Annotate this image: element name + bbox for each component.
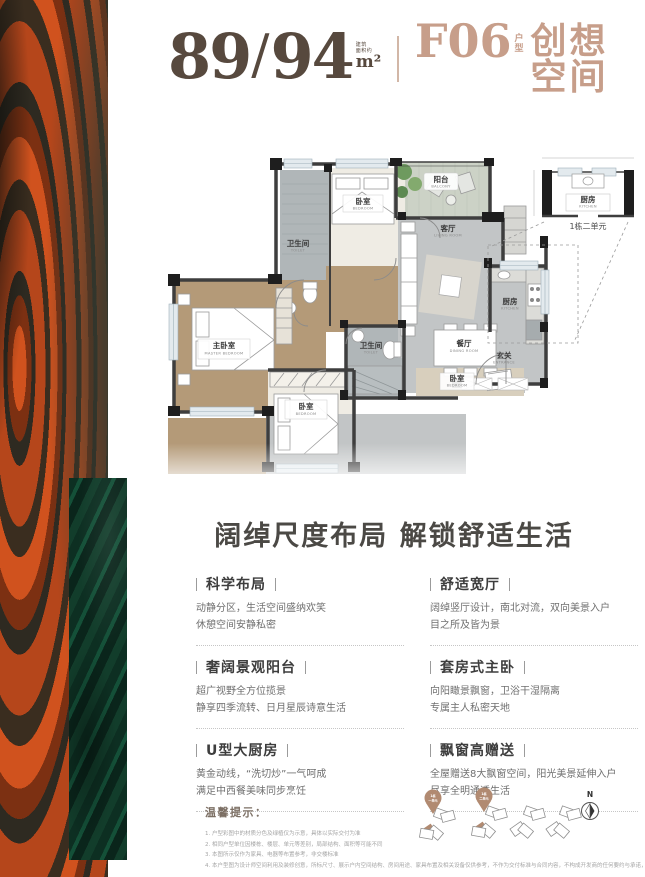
building-cluster-2 [471, 806, 507, 838]
plan-code-group: F06 户 型 创想空间 [415, 18, 634, 95]
feature-line: 黄金动线，“洗切炒”一气呵成 [196, 766, 404, 783]
feature-title: 舒适宽厅 [440, 574, 500, 594]
feature-header: 奢阔景观阳台 [196, 657, 404, 677]
tick-bar [430, 578, 431, 591]
feature-title: 套房式主卧 [440, 657, 515, 677]
tick-bar [196, 661, 197, 674]
section-headline: 阔绰尺度布局 解锁舒适生活 [158, 514, 630, 553]
feature-header: 舒适宽厅 [430, 574, 638, 594]
feature-header: 套房式主卧 [430, 657, 638, 677]
feature-line: 动静分区，生活空间盛纳欢笑 [196, 600, 404, 617]
feature-line: 专属主人私密天地 [430, 700, 638, 717]
room-sublabel-entrance: ENTRANCE [493, 361, 515, 365]
tick-bar [305, 661, 306, 674]
building-cluster-1 [419, 808, 455, 840]
site-key: 1栋 一单元 1栋 二单元 N [406, 784, 642, 870]
inset-plan: 厨房 KITCHEN 1栋二单元 [534, 158, 634, 231]
area-separator: / [251, 28, 269, 82]
feature-line: 休憩空间安静私密 [196, 617, 404, 634]
feature-title: 奢阔景观阳台 [206, 657, 296, 677]
room-sublabel-bedroom-mid: BEDROOM [296, 412, 317, 416]
room-sublabel-toilet-mid: TOILET [363, 351, 379, 355]
area-alt: 94 [270, 26, 352, 88]
feature-line: 满足中西餐美味同步烹饪 [196, 783, 404, 800]
feature-line: 向阳瞰景飘窗，卫浴干湿隔离 [430, 683, 638, 700]
feature-line: 静享四季流转、日月星辰诗意生活 [196, 700, 404, 717]
plan-code-suffix: 户 型 [514, 34, 523, 54]
feature-line: 全屋赠送8大飘窗空间，阳光美景延伸入户 [430, 766, 638, 783]
room-sublabel-balcony: BALCONY [431, 185, 451, 189]
header: 89 / 94 建筑 面积约 m² F06 户 型 创想空间 [168, 18, 634, 95]
room-sublabel-toilet-top: TOILET [290, 249, 306, 253]
inset-kitchen-label: 厨房 [581, 194, 596, 204]
pin-text-line1: 1栋 [430, 793, 436, 798]
pin-text-line2: 一单元 [428, 798, 438, 803]
room-sublabel-living: LIVING ROOM [434, 234, 462, 238]
building-cluster-3 [510, 806, 545, 838]
room-label-bedroom-top: 卧室 [356, 196, 371, 206]
compass-n-label: N [587, 790, 593, 799]
room-sublabel-bedroom-right: BEDROOM [447, 384, 468, 388]
room-sublabel-kitchen: KITCHEN [501, 307, 519, 311]
pin-text-line2: 二单元 [479, 796, 489, 801]
feature-balcony-view: 奢阔景观阳台 超广视野全方位揽景 静享四季流转、日月星辰诗意生活 [196, 657, 404, 729]
tick-bar [287, 744, 288, 757]
plan-code-suffix-2: 型 [514, 44, 523, 54]
area-unit-block: 建筑 面积约 m² [356, 42, 381, 71]
feature-science-layout: 科学布局 动静分区，生活空间盛纳欢笑 休憩空间安静私密 [196, 574, 404, 646]
feature-title: U型大厨房 [206, 740, 278, 760]
area-main: 89 [168, 26, 250, 88]
plan-name: 创想空间 [531, 23, 635, 95]
tick-bar [196, 744, 197, 757]
room-label-kitchen: 厨房 [503, 296, 518, 306]
inset-kitchen-sublabel: KITCHEN [579, 205, 597, 209]
area-unit: m² [356, 54, 381, 71]
inset-caption: 1栋二单元 [569, 221, 606, 231]
room-sublabel-bedroom-top: BEDROOM [353, 207, 374, 211]
building-cluster-4 [546, 806, 581, 838]
tick-bar [509, 578, 510, 591]
room-label-bedroom-right: 卧室 [450, 373, 465, 383]
green-marble-strip [69, 478, 127, 860]
feature-header: U型大厨房 [196, 740, 404, 760]
plan-code-suffix-1: 户 [514, 34, 523, 44]
feature-grid: 科学布局 动静分区，生活空间盛纳欢笑 休憩空间安静私密 舒适宽厅 阔绰竖厅设计，… [196, 574, 638, 812]
poster-page: 89 / 94 建筑 面积约 m² F06 户 型 创想空间 [0, 0, 645, 877]
feature-title: 飘窗高赠送 [440, 740, 515, 760]
tick-bar [524, 744, 525, 757]
pin-text-line1: 1栋 [481, 791, 487, 796]
tick-bar [196, 578, 197, 591]
feature-line: 目之所及皆为景 [430, 617, 638, 634]
room-label-bedroom-mid: 卧室 [299, 401, 314, 411]
feature-u-kitchen: U型大厨房 黄金动线，“洗切炒”一气呵成 满足中西餐美味同步烹饪 [196, 740, 404, 812]
room-label-master: 主卧室 [213, 340, 236, 350]
room-label-toilet-top: 卫生间 [287, 238, 310, 248]
tick-bar [524, 661, 525, 674]
header-divider [397, 36, 399, 82]
tick-bar [430, 744, 431, 757]
room-sublabel-dining: DINING ROOM [450, 349, 479, 353]
area-figures: 89 / 94 建筑 面积约 m² [168, 26, 381, 88]
tick-bar [430, 661, 431, 674]
compass-icon: N [582, 790, 599, 820]
feature-line: 阔绰竖厅设计，南北对流，双向美景入户 [430, 600, 638, 617]
room-label-living: 客厅 [440, 223, 456, 233]
feature-title: 科学布局 [206, 574, 266, 594]
tick-bar [275, 578, 276, 591]
feature-line: 超广视野全方位揽景 [196, 683, 404, 700]
room-sublabel-master: MASTER BEDROOM [205, 352, 244, 356]
room-label-balcony: 阳台 [434, 174, 449, 184]
feature-header: 飘窗高赠送 [430, 740, 638, 760]
plan-bottom-fade [158, 418, 645, 490]
room-label-dining: 餐厅 [456, 338, 472, 348]
plan-code: F06 [415, 18, 512, 64]
floor-plan: 厨房 KITCHEN 1栋二单元 阳台 BALCONY 卧室 BEDROOM 卫… [158, 118, 645, 490]
feature-header: 科学布局 [196, 574, 404, 594]
feature-comfort-hall: 舒适宽厅 阔绰竖厅设计，南北对流，双向美景入户 目之所及皆为景 [430, 574, 638, 646]
room-label-toilet-mid: 卫生间 [360, 340, 383, 350]
feature-suite-master: 套房式主卧 向阳瞰景飘窗，卫浴干湿隔离 专属主人私密天地 [430, 657, 638, 729]
room-label-entrance: 玄关 [497, 350, 512, 360]
